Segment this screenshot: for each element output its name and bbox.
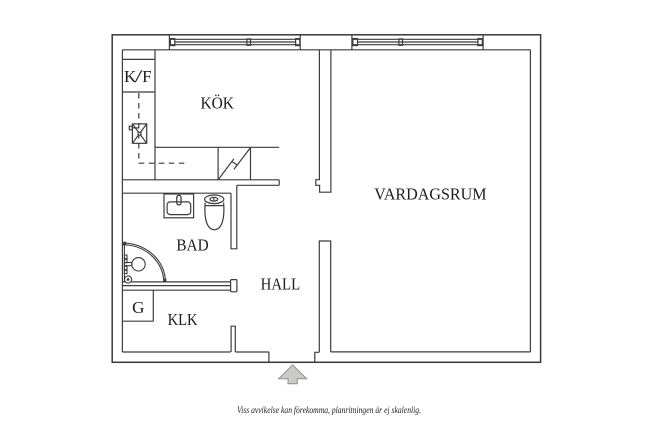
svg-text:KLK: KLK [168, 310, 199, 329]
svg-text:BAD: BAD [176, 236, 208, 255]
svg-text:VARDAGSRUM: VARDAGSRUM [374, 184, 486, 203]
svg-text:KÖK: KÖK [200, 94, 234, 113]
svg-text:HALL: HALL [261, 275, 301, 294]
svg-text:K: K [124, 67, 137, 86]
svg-text:F: F [142, 67, 151, 86]
svg-text:G: G [132, 298, 144, 317]
svg-text:Viss avvikelse kan förekomma,: Viss avvikelse kan förekomma, planritnin… [237, 405, 421, 416]
